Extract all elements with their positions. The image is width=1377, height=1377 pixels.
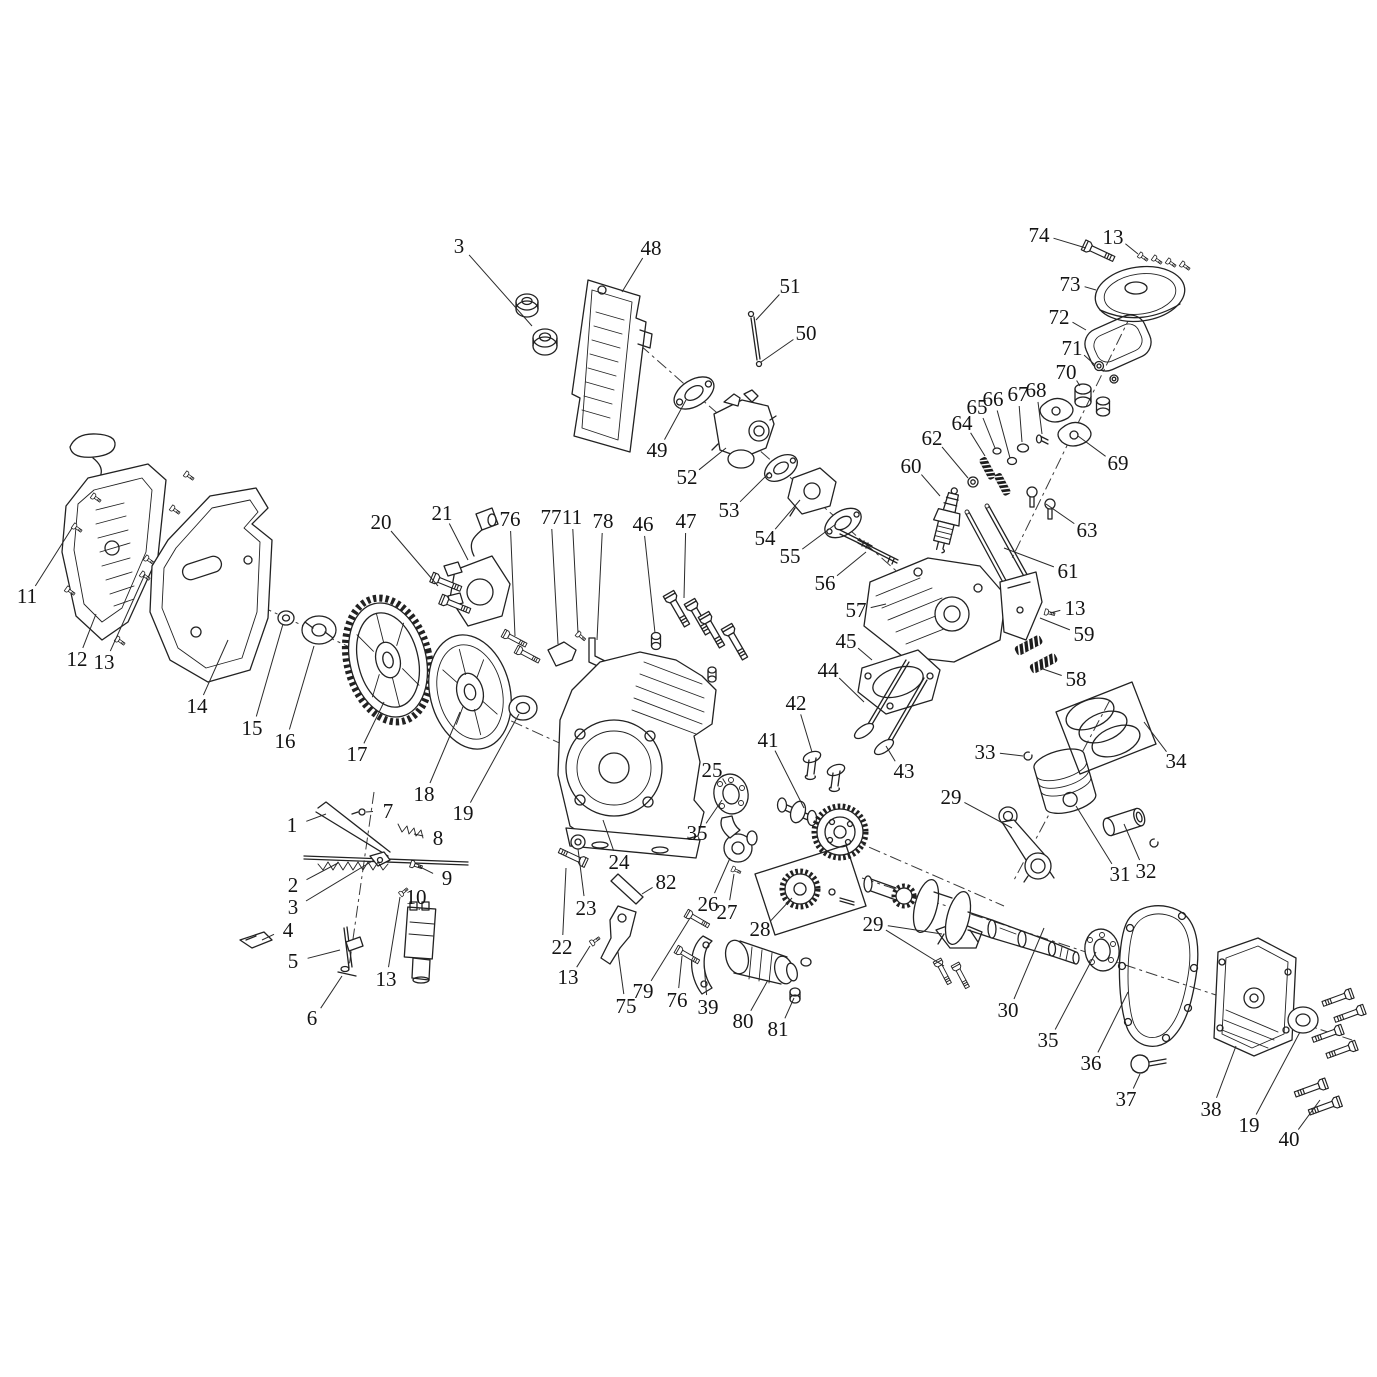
callout-label: 22 bbox=[552, 935, 573, 959]
callout-label: 69 bbox=[1108, 451, 1129, 475]
leader-line bbox=[645, 536, 655, 633]
exploded-engine-diagram: 1234567891011111213131313131415161718191… bbox=[0, 0, 1377, 1377]
callout-label: 79 bbox=[633, 979, 654, 1003]
leader-line bbox=[706, 800, 722, 823]
leader-line bbox=[1073, 322, 1087, 330]
callout-label: 48 bbox=[641, 236, 662, 260]
fan-cover bbox=[150, 488, 272, 682]
muffler bbox=[572, 280, 652, 452]
callout-label: 1 bbox=[287, 813, 298, 837]
leader-line bbox=[289, 646, 314, 730]
leader-line bbox=[858, 648, 872, 660]
leader-line bbox=[622, 258, 643, 292]
oil-level-switch bbox=[404, 902, 435, 983]
callout-label: 81 bbox=[768, 1017, 789, 1041]
callout-label: 35 bbox=[1038, 1028, 1059, 1052]
leader-line bbox=[983, 418, 995, 448]
leader-line bbox=[573, 529, 578, 633]
rear-main-bearing bbox=[1082, 926, 1123, 973]
callout-label: 76 bbox=[500, 507, 521, 531]
leader-line bbox=[1019, 406, 1022, 442]
valve-spacers bbox=[1075, 384, 1110, 416]
flywheel-nut bbox=[278, 611, 294, 625]
callout-label: 13 bbox=[1103, 225, 1124, 249]
leader-line bbox=[1046, 504, 1074, 524]
leader-line bbox=[563, 868, 566, 935]
pin-clip bbox=[1024, 752, 1032, 760]
leader-line bbox=[321, 976, 342, 1008]
callout-label: 27 bbox=[717, 900, 738, 924]
leader-line bbox=[1125, 244, 1138, 254]
callout-label: 11 bbox=[17, 584, 37, 608]
callout-label: 40 bbox=[1279, 1127, 1300, 1151]
valve-guide-plate bbox=[1000, 572, 1042, 640]
callout-label: 28 bbox=[750, 917, 771, 941]
callout-label: 59 bbox=[1074, 622, 1095, 646]
leader-line bbox=[1040, 668, 1062, 676]
leader-line bbox=[1298, 1100, 1320, 1130]
leader-line bbox=[1000, 753, 1023, 756]
crankshaft bbox=[864, 876, 1079, 964]
callout-label: 13 bbox=[558, 965, 579, 989]
crank-oil-seal-front bbox=[509, 696, 537, 720]
callout-label: 16 bbox=[275, 729, 296, 753]
leader-line bbox=[642, 887, 653, 894]
callout-label: 70 bbox=[1056, 360, 1077, 384]
leader-line bbox=[418, 866, 433, 873]
callout-label: 2 bbox=[288, 873, 299, 897]
callout-label: 32 bbox=[1136, 859, 1157, 883]
callout-label: 19 bbox=[453, 801, 474, 825]
leader-line bbox=[597, 533, 602, 640]
callout-label: 78 bbox=[593, 509, 614, 533]
leader-line bbox=[1078, 436, 1106, 456]
callout-label: 49 bbox=[647, 438, 668, 462]
callout-label: 71 bbox=[1062, 336, 1083, 360]
leader-line bbox=[837, 552, 866, 576]
callout-label: 12 bbox=[67, 647, 88, 671]
callout-label: 11 bbox=[562, 505, 582, 529]
callout-label: 4 bbox=[283, 918, 294, 942]
callout-label: 19 bbox=[1239, 1113, 1260, 1137]
leader-line bbox=[1098, 992, 1128, 1052]
starter-motor bbox=[692, 936, 811, 1003]
callout-label: 29 bbox=[863, 912, 884, 936]
air-cleaner-cover bbox=[1092, 261, 1189, 327]
leader-line bbox=[715, 858, 731, 893]
leader-line bbox=[552, 529, 558, 644]
leader-line bbox=[785, 998, 794, 1018]
callout-label: 7 bbox=[383, 799, 394, 823]
leader-line bbox=[1076, 806, 1112, 864]
oil-drain-bolt bbox=[557, 835, 588, 867]
leader-line bbox=[306, 860, 374, 901]
leader-line bbox=[756, 295, 779, 321]
callout-label: 44 bbox=[818, 658, 840, 682]
callout-label: 8 bbox=[433, 826, 444, 850]
callout-label: 39 bbox=[698, 995, 719, 1019]
callout-label: 80 bbox=[733, 1009, 754, 1033]
leader-line bbox=[971, 433, 985, 456]
callout-label: 38 bbox=[1201, 1097, 1222, 1121]
carb-insulator bbox=[788, 468, 836, 516]
starter-cup bbox=[302, 616, 336, 644]
callout-label: 37 bbox=[1116, 1087, 1137, 1111]
callout-label: 63 bbox=[1077, 518, 1098, 542]
governor-shaft-rod bbox=[749, 312, 762, 367]
rocker-pivots bbox=[1027, 487, 1055, 519]
callout-label: 68 bbox=[1026, 378, 1047, 402]
shield-bolts bbox=[501, 629, 541, 665]
callout-label: 53 bbox=[719, 498, 740, 522]
valve-caps-springs bbox=[968, 435, 1048, 497]
callout-label: 58 bbox=[1066, 667, 1087, 691]
shield-screw bbox=[575, 631, 587, 642]
pin-clip-2 bbox=[1150, 839, 1158, 847]
leader-line bbox=[775, 500, 800, 529]
callout-label: 18 bbox=[414, 782, 435, 806]
callout-label: 5 bbox=[288, 949, 299, 973]
callout-label: 57 bbox=[846, 598, 867, 622]
crankcase-cover bbox=[1214, 938, 1296, 1056]
leader-line bbox=[449, 524, 468, 561]
leader-line bbox=[308, 950, 340, 958]
callout-label: 43 bbox=[894, 759, 915, 783]
callout-label: 33 bbox=[975, 740, 996, 764]
callout-label: 24 bbox=[609, 850, 631, 874]
camshaft bbox=[778, 798, 867, 858]
callout-label: 45 bbox=[836, 629, 857, 653]
callout-label: 36 bbox=[1081, 1051, 1102, 1075]
leader-line bbox=[577, 946, 590, 967]
leader-line bbox=[1054, 238, 1087, 248]
callout-label: 46 bbox=[633, 512, 654, 536]
leader-line bbox=[1004, 548, 1054, 567]
leader-line bbox=[366, 812, 373, 813]
callout-label: 72 bbox=[1049, 305, 1070, 329]
crankcase-cover-gasket bbox=[1119, 906, 1198, 1047]
leader-line bbox=[684, 533, 686, 598]
callout-label: 41 bbox=[758, 728, 779, 752]
head-long-bolts bbox=[663, 590, 750, 661]
oil-splasher bbox=[1131, 1055, 1166, 1073]
plate-screw bbox=[1044, 609, 1055, 617]
callout-label: 34 bbox=[1166, 749, 1188, 773]
rocker-arms bbox=[1040, 398, 1091, 446]
intake-gasket bbox=[820, 502, 867, 544]
leader-line bbox=[761, 340, 793, 363]
connecting-rod bbox=[999, 807, 1054, 882]
leader-line bbox=[942, 447, 968, 478]
flywheel-rotor bbox=[417, 626, 523, 758]
leader-line bbox=[679, 956, 682, 988]
callout-label: 61 bbox=[1058, 559, 1079, 583]
callout-label: 10 bbox=[406, 885, 427, 909]
bracket-screw bbox=[589, 935, 601, 946]
callout-label: 55 bbox=[780, 544, 801, 568]
leader-line bbox=[618, 952, 624, 994]
valve-lifters bbox=[802, 749, 846, 791]
leader-line bbox=[699, 448, 726, 470]
leader-line bbox=[771, 898, 792, 921]
callout-label: 60 bbox=[901, 454, 922, 478]
diagram-canvas: 1234567891011111213131313131415161718191… bbox=[0, 0, 1377, 1377]
callout-label: 56 bbox=[815, 571, 836, 595]
callout-label: 23 bbox=[576, 896, 597, 920]
leader-line bbox=[886, 930, 944, 966]
callout-label: 3 bbox=[454, 234, 465, 258]
callout-label: 77 bbox=[541, 505, 562, 529]
leader-line bbox=[391, 531, 438, 586]
callout-label: 74 bbox=[1029, 223, 1051, 247]
callout-label: 73 bbox=[1060, 272, 1081, 296]
callout-label: 54 bbox=[755, 526, 777, 550]
muffler-flange-nuts bbox=[516, 294, 557, 355]
leader-line bbox=[730, 874, 734, 900]
leader-line bbox=[511, 531, 515, 636]
spark-plug bbox=[926, 485, 967, 555]
leader-line bbox=[578, 849, 584, 896]
callout-label: 31 bbox=[1110, 862, 1131, 886]
callout-label: 29 bbox=[941, 785, 962, 809]
callout-label: 13 bbox=[1065, 596, 1086, 620]
leader-line bbox=[1085, 287, 1096, 290]
callout-label: 26 bbox=[698, 892, 719, 916]
leader-line bbox=[751, 980, 768, 1011]
leader-line bbox=[1050, 610, 1060, 613]
callout-label: 14 bbox=[187, 694, 209, 718]
callout-label: 47 bbox=[676, 509, 697, 533]
flywheel bbox=[333, 589, 443, 731]
leader-line bbox=[306, 814, 326, 821]
valve-springs bbox=[1014, 634, 1059, 674]
leader-line bbox=[389, 897, 401, 967]
callout-label: 30 bbox=[998, 998, 1019, 1022]
callout-label: 15 bbox=[242, 716, 263, 740]
leader-line bbox=[651, 918, 690, 981]
leader-line bbox=[921, 475, 940, 496]
callout-label: 82 bbox=[656, 870, 677, 894]
callout-label: 25 bbox=[702, 758, 723, 782]
callout-label: 9 bbox=[442, 866, 453, 890]
piston bbox=[1031, 744, 1098, 818]
leader-line bbox=[801, 714, 812, 752]
callout-label: 13 bbox=[94, 650, 115, 674]
leader-line bbox=[469, 255, 532, 326]
callout-label: 17 bbox=[347, 742, 368, 766]
head-gasket bbox=[858, 650, 940, 714]
callout-label: 76 bbox=[667, 988, 688, 1012]
leader-line bbox=[740, 472, 770, 502]
callout-label: 42 bbox=[786, 691, 807, 715]
leader-line bbox=[307, 863, 339, 880]
leader-line bbox=[665, 400, 687, 440]
callout-label: 21 bbox=[432, 501, 453, 525]
rear-oil-seal bbox=[1288, 1007, 1318, 1033]
callout-label: 51 bbox=[780, 274, 801, 298]
callout-label: 3 bbox=[288, 895, 299, 919]
piston-pin bbox=[1101, 807, 1147, 837]
callout-label: 13 bbox=[376, 967, 397, 991]
cylinder-head bbox=[864, 558, 1006, 662]
callout-label: 50 bbox=[796, 321, 817, 345]
callout-label: 35 bbox=[687, 821, 708, 845]
callout-label: 62 bbox=[922, 426, 943, 450]
callout-label: 6 bbox=[307, 1006, 318, 1030]
breather-tube bbox=[601, 874, 643, 964]
leader-line bbox=[1217, 1046, 1237, 1098]
callout-label: 66 bbox=[983, 387, 1004, 411]
callout-label: 20 bbox=[371, 510, 392, 534]
callout-label: 52 bbox=[677, 465, 698, 489]
